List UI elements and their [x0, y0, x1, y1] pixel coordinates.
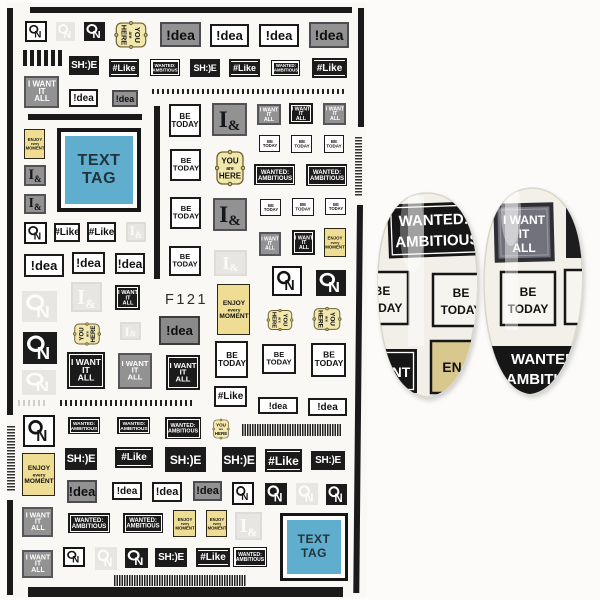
svg-text:YOU: YOU	[133, 27, 142, 43]
svg-text:are: are	[278, 317, 282, 323]
svg-text:TODAY: TODAY	[441, 303, 482, 317]
svg-text:HERE: HERE	[90, 325, 97, 342]
svg-text:N: N	[328, 280, 340, 296]
svg-text:N: N	[334, 493, 342, 505]
svg-text:BE: BE	[520, 285, 537, 299]
svg-text:N: N	[92, 30, 100, 41]
svg-text:BE: BE	[374, 284, 391, 298]
svg-text:HERE: HERE	[219, 171, 242, 180]
svg-text:N: N	[34, 30, 41, 40]
svg-text:TODAY: TODAY	[364, 301, 402, 315]
svg-text:YOU: YOU	[221, 156, 239, 165]
svg-text:HERE: HERE	[214, 430, 227, 435]
svg-text:N: N	[37, 344, 51, 363]
svg-text:WANTED:: WANTED:	[511, 351, 581, 368]
svg-text:N: N	[305, 491, 314, 505]
svg-text:are: are	[85, 331, 89, 337]
svg-text:N: N	[36, 302, 50, 321]
svg-text:N: N	[36, 428, 47, 445]
svg-text:EN: EN	[442, 359, 461, 375]
svg-text:N: N	[274, 491, 283, 505]
svg-text:N: N	[36, 380, 50, 395]
svg-text:IT: IT	[519, 227, 530, 241]
svg-text:N: N	[134, 555, 143, 568]
svg-text:are: are	[128, 32, 133, 39]
svg-text:YOU: YOU	[216, 422, 226, 427]
svg-text:are: are	[218, 427, 223, 431]
svg-text:N: N	[34, 232, 42, 242]
svg-text:YOU: YOU	[281, 314, 287, 327]
svg-text:HERE: HERE	[119, 25, 128, 46]
svg-text:N: N	[64, 30, 72, 41]
svg-text:N: N	[104, 555, 113, 569]
svg-text:HERE: HERE	[270, 312, 276, 328]
svg-text:HERE: HERE	[316, 310, 323, 328]
svg-text:BE: BE	[453, 286, 470, 300]
svg-text:YOU: YOU	[78, 326, 85, 340]
svg-text:N: N	[284, 278, 294, 294]
svg-text:N: N	[241, 492, 248, 503]
svg-text:N: N	[72, 555, 79, 564]
svg-text:are: are	[324, 316, 329, 323]
svg-text:AMBITIOUS: AMBITIOUS	[506, 371, 590, 388]
